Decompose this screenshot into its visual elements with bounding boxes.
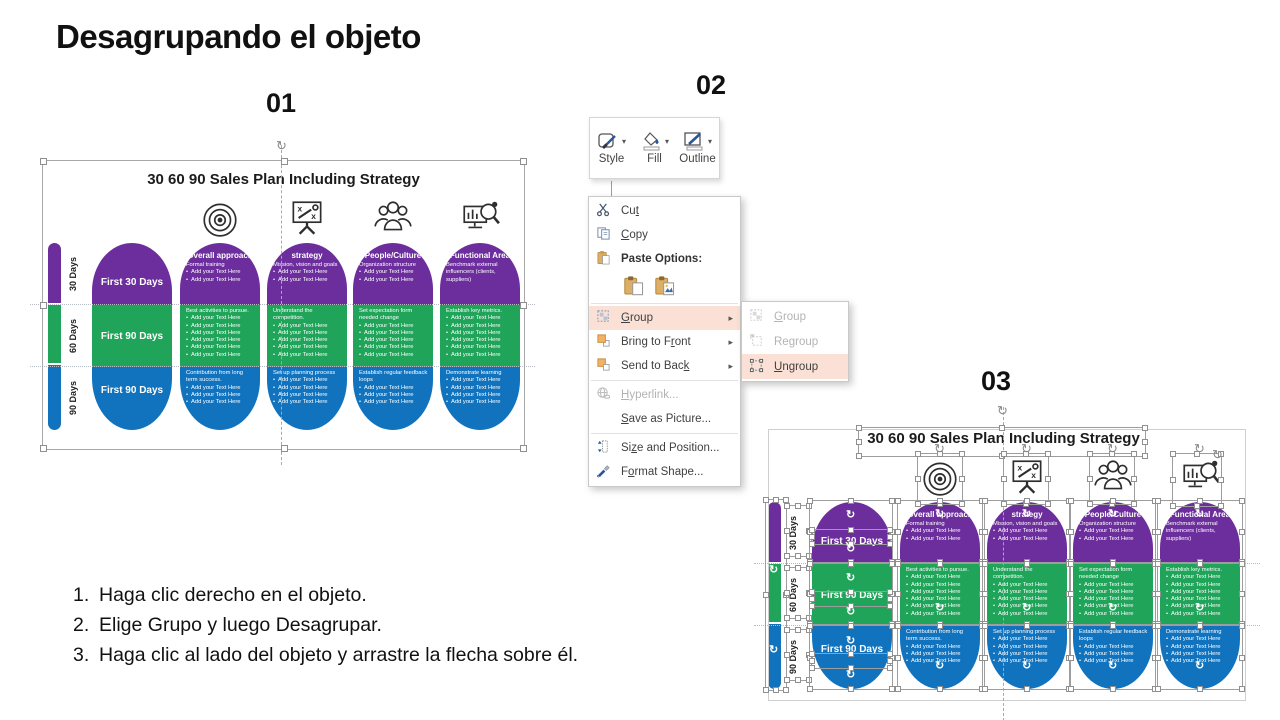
selection-handle[interactable]	[807, 498, 813, 504]
selection-handle[interactable]	[784, 553, 790, 559]
selection-handle[interactable]	[887, 527, 893, 533]
rotate-handle[interactable]: ↻	[1021, 443, 1032, 455]
grouped-object[interactable]: 30 60 90 Sales Plan Including Strategy x…	[42, 160, 525, 450]
selection-handle[interactable]	[1131, 476, 1137, 482]
selection-handle[interactable]	[809, 534, 815, 540]
selection-handle[interactable]	[982, 686, 988, 692]
rotate-handle[interactable]: ↻	[935, 602, 944, 614]
paste-icon	[594, 250, 613, 268]
selection-handle[interactable]	[887, 658, 893, 664]
rotate-handle[interactable]: ↻	[1212, 449, 1223, 461]
rotate-handle[interactable]: ↻	[846, 635, 855, 647]
selection-handle[interactable]	[1197, 498, 1203, 504]
selection-handle[interactable]	[1239, 623, 1245, 629]
selection-handle[interactable]	[809, 589, 815, 595]
selection-handle[interactable]	[895, 529, 901, 535]
selection-handle[interactable]	[40, 158, 47, 165]
selection-handle[interactable]	[1239, 591, 1245, 597]
selection-handle[interactable]	[809, 527, 815, 533]
menu-item-copy[interactable]: Copy	[589, 223, 740, 247]
selection-handle[interactable]	[1142, 453, 1148, 459]
selection-handle[interactable]	[848, 623, 854, 629]
instructions-list: 1.Haga clic derecho en el objeto. 2.Elig…	[73, 584, 693, 674]
selection-handle[interactable]	[795, 553, 801, 559]
group-icon	[747, 308, 766, 326]
selection-handle[interactable]	[784, 615, 790, 621]
selection-handle[interactable]	[937, 623, 943, 629]
selection-handle[interactable]	[1068, 655, 1074, 661]
selection-handle[interactable]	[1218, 477, 1224, 483]
selection-handle[interactable]	[784, 503, 790, 509]
selection-handle[interactable]	[887, 589, 893, 595]
rotate-handle[interactable]: ↻	[846, 543, 855, 555]
selection-handle[interactable]	[809, 665, 815, 671]
rotate-handle[interactable]: ↻	[769, 644, 778, 656]
selection-handle[interactable]	[520, 158, 527, 165]
selection-handle[interactable]	[982, 498, 988, 504]
instruction-step-3: 3.Haga clic al lado del objeto y arrastr…	[73, 644, 693, 667]
selection-handle[interactable]	[520, 445, 527, 452]
group-icon	[594, 309, 613, 327]
selection-handle[interactable]	[1068, 498, 1074, 504]
menu-item-size-and-position[interactable]: Size and Position...	[589, 436, 740, 460]
selection-handle[interactable]	[1155, 686, 1161, 692]
rotate-handle[interactable]: ↻	[1195, 660, 1204, 672]
selection-handle[interactable]	[887, 534, 893, 540]
selection-handle[interactable]	[281, 158, 288, 165]
rotate-handle[interactable]: ↻	[1195, 508, 1204, 520]
slide: Desagrupando el objeto 01 02 03 30 60 90…	[0, 0, 1280, 720]
menu-item-bring-to-front[interactable]: Bring to Front ▸	[589, 330, 740, 354]
rotate-handle[interactable]: ↻	[1022, 660, 1031, 672]
selection-handle[interactable]	[1068, 591, 1074, 597]
selection-handle[interactable]	[784, 652, 790, 658]
instruction-step-2: 2.Elige Grupo y luego Desagrupar.	[73, 614, 693, 637]
fill-icon	[640, 131, 664, 151]
paste-options-row	[589, 271, 740, 301]
step-number-01: 01	[266, 88, 296, 119]
selection-handle[interactable]	[895, 591, 901, 597]
dropdown-arrow-icon[interactable]: ▾	[665, 137, 669, 146]
rotate-handle[interactable]: ↻	[1108, 660, 1117, 672]
selection-handle[interactable]	[982, 591, 988, 597]
format-shape-icon	[594, 463, 613, 481]
context-menu: Cut Copy Paste Options:	[588, 196, 741, 487]
submenu-arrow-icon: ▸	[728, 337, 733, 348]
submenu-arrow-icon: ▸	[728, 313, 733, 324]
selection-handle[interactable]	[1155, 655, 1161, 661]
selection-handle[interactable]	[1142, 425, 1148, 431]
selection-handle[interactable]	[895, 561, 901, 567]
selection-box[interactable]	[811, 653, 891, 669]
menu-separator	[591, 433, 738, 434]
cursor-line	[611, 181, 612, 196]
rotate-handle[interactable]: ↻	[1195, 602, 1204, 614]
selection-handle[interactable]	[1155, 623, 1161, 629]
selection-handle[interactable]	[809, 658, 815, 664]
selection-handle[interactable]	[937, 561, 943, 567]
selection-handle[interactable]	[1110, 623, 1116, 629]
selection-handle[interactable]	[895, 498, 901, 504]
selection-handle[interactable]	[856, 453, 862, 459]
selection-handle[interactable]	[848, 561, 854, 567]
selection-handle[interactable]	[1001, 451, 1007, 457]
selection-handle[interactable]	[784, 677, 790, 683]
submenu-arrow-icon: ▸	[728, 361, 733, 372]
rotate-handle[interactable]: ↻	[846, 572, 855, 584]
ungroup-icon	[747, 358, 766, 376]
submenu-item-group: Group	[742, 304, 848, 329]
style-icon	[597, 131, 621, 151]
selection-handle[interactable]	[1024, 561, 1030, 567]
selection-handle[interactable]	[937, 498, 943, 504]
selection-handle[interactable]	[848, 589, 854, 595]
selection-handle[interactable]	[773, 497, 779, 503]
hyperlink-icon	[594, 386, 613, 404]
selection-handle[interactable]	[895, 655, 901, 661]
selection-box[interactable]	[1157, 625, 1243, 690]
selection-handle[interactable]	[281, 445, 288, 452]
style-button[interactable]: ▾ Style	[590, 118, 633, 178]
rotate-handle[interactable]: ↻	[1194, 443, 1205, 455]
selection-handle[interactable]	[887, 665, 893, 671]
selection-handle[interactable]	[982, 529, 988, 535]
fill-label: Fill	[647, 153, 662, 165]
selection-handle[interactable]	[795, 677, 801, 683]
selection-handle[interactable]	[40, 445, 47, 452]
rotate-handle[interactable]: ↻	[935, 508, 944, 520]
step-number-03: 03	[981, 366, 1011, 397]
selection-handle[interactable]	[895, 686, 901, 692]
submenu-item-ungroup[interactable]: Ungroup	[742, 354, 848, 379]
selection-handle[interactable]	[807, 561, 813, 567]
selection-handle[interactable]	[1239, 686, 1245, 692]
menu-item-send-to-back[interactable]: Send to Back ▸	[589, 354, 740, 378]
selection-handle[interactable]	[795, 615, 801, 621]
selection-frame[interactable]	[42, 160, 525, 450]
selection-handle[interactable]	[763, 497, 769, 503]
selection-handle[interactable]	[1001, 476, 1007, 482]
regroup-icon	[747, 333, 766, 351]
selection-handle[interactable]	[848, 527, 854, 533]
dropdown-arrow-icon[interactable]: ▾	[708, 137, 712, 146]
selection-handle[interactable]	[1087, 476, 1093, 482]
dropdown-arrow-icon[interactable]: ▾	[622, 137, 626, 146]
selection-handle[interactable]	[1239, 561, 1245, 567]
style-label: Style	[599, 153, 625, 165]
selection-box[interactable]	[897, 563, 983, 625]
selection-handle[interactable]	[1131, 451, 1137, 457]
menu-item-hyperlink: Hyperlink...	[589, 383, 740, 407]
group-submenu: Group Regroup Ungroup	[741, 301, 849, 382]
bring-to-front-icon	[594, 333, 613, 351]
selection-handle[interactable]	[809, 596, 815, 602]
selection-handle[interactable]	[809, 541, 815, 547]
rotate-handle[interactable]: ↻	[997, 405, 1008, 417]
rotate-handle[interactable]: ↻	[1022, 602, 1031, 614]
selection-handle[interactable]	[763, 687, 769, 693]
cut-icon	[594, 202, 613, 220]
menu-item-paste-options: Paste Options:	[589, 247, 740, 271]
outline-label: Outline	[679, 153, 715, 165]
selection-handle[interactable]	[1155, 591, 1161, 597]
selection-handle[interactable]	[887, 651, 893, 657]
rotate-handle[interactable]: ↻	[1107, 443, 1118, 455]
selection-handle[interactable]	[784, 590, 790, 596]
rotate-handle[interactable]: ↻	[846, 669, 855, 681]
selection-handle[interactable]	[1024, 498, 1030, 504]
selection-handle[interactable]	[848, 498, 854, 504]
ungrouped-object[interactable]: 30 60 90 Sales Plan Including Strategy x…	[762, 419, 1245, 709]
selection-handle[interactable]	[520, 302, 527, 309]
selection-handle[interactable]	[1068, 561, 1074, 567]
selection-handle[interactable]	[999, 425, 1005, 431]
selection-handle[interactable]	[848, 686, 854, 692]
selection-handle[interactable]	[1045, 476, 1051, 482]
selection-handle[interactable]	[1024, 686, 1030, 692]
send-to-back-icon	[594, 357, 613, 375]
selection-handle[interactable]	[856, 439, 862, 445]
selection-box[interactable]	[1157, 563, 1243, 625]
selection-handle[interactable]	[887, 596, 893, 602]
selection-handle[interactable]	[763, 592, 769, 598]
paste-picture-button[interactable]	[652, 274, 677, 297]
mini-toolbar: ▾ Style ▾ Fill ▾	[589, 117, 720, 179]
selection-handle[interactable]	[795, 503, 801, 509]
outline-icon	[683, 131, 707, 151]
size-position-icon	[594, 439, 613, 457]
selection-handle[interactable]	[1068, 529, 1074, 535]
selection-handle[interactable]	[40, 302, 47, 309]
selection-handle[interactable]	[959, 476, 965, 482]
step-number-02: 02	[696, 70, 726, 101]
selection-handle[interactable]	[1155, 498, 1161, 504]
menu-item-group[interactable]: Group ▸	[589, 306, 740, 330]
selection-handle[interactable]	[1239, 529, 1245, 535]
selection-handle[interactable]	[1110, 561, 1116, 567]
selection-handle[interactable]	[809, 603, 815, 609]
selection-handle[interactable]	[915, 451, 921, 457]
selection-handle[interactable]	[1239, 655, 1245, 661]
selection-handle[interactable]	[1170, 451, 1176, 457]
page-title: Desagrupando el objeto	[56, 18, 421, 56]
submenu-item-regroup: Regroup	[742, 329, 848, 354]
rotate-handle[interactable]: ↻	[935, 660, 944, 672]
selection-handle[interactable]	[887, 541, 893, 547]
selection-handle[interactable]	[1068, 686, 1074, 692]
selection-handle[interactable]	[895, 623, 901, 629]
selection-handle[interactable]	[784, 565, 790, 571]
menu-item-cut[interactable]: Cut	[589, 199, 740, 223]
selection-handle[interactable]	[784, 627, 790, 633]
rotate-handle[interactable]: ↻	[769, 564, 778, 576]
selection-handle[interactable]	[1087, 451, 1093, 457]
selection-handle[interactable]	[1239, 498, 1245, 504]
selection-handle[interactable]	[959, 451, 965, 457]
selection-handle[interactable]	[1197, 686, 1203, 692]
selection-handle[interactable]	[1197, 561, 1203, 567]
selection-handle[interactable]	[982, 561, 988, 567]
instruction-step-1: 1.Haga clic derecho en el objeto.	[73, 584, 693, 607]
selection-handle[interactable]	[795, 565, 801, 571]
selection-box[interactable]	[984, 625, 1070, 690]
rotate-handle[interactable]: ↻	[1022, 508, 1031, 520]
rotate-handle[interactable]: ↻	[1108, 508, 1117, 520]
selection-handle[interactable]	[937, 686, 943, 692]
menu-item-save-as-picture[interactable]: Save as Picture...	[589, 407, 740, 431]
selection-box[interactable]	[897, 625, 983, 690]
selection-handle[interactable]	[1110, 498, 1116, 504]
selection-handle[interactable]	[1155, 529, 1161, 535]
selection-handle[interactable]	[1155, 561, 1161, 567]
selection-handle[interactable]	[1170, 477, 1176, 483]
copy-icon	[594, 226, 613, 244]
outline-button[interactable]: ▾ Outline	[676, 118, 719, 178]
selection-handle[interactable]	[783, 687, 789, 693]
selection-handle[interactable]	[807, 686, 813, 692]
menu-item-format-shape[interactable]: Format Shape...	[589, 460, 740, 484]
selection-handle[interactable]	[1142, 439, 1148, 445]
menu-separator	[591, 380, 738, 381]
selection-handle[interactable]	[809, 651, 815, 657]
selection-handle[interactable]	[1024, 623, 1030, 629]
menu-separator	[591, 303, 738, 304]
selection-handle[interactable]	[784, 528, 790, 534]
selection-handle[interactable]	[848, 651, 854, 657]
selection-handle[interactable]	[795, 627, 801, 633]
selection-box[interactable]	[811, 591, 891, 607]
selection-handle[interactable]	[1045, 451, 1051, 457]
selection-handle[interactable]	[1110, 686, 1116, 692]
selection-handle[interactable]	[915, 476, 921, 482]
selection-handle[interactable]	[887, 603, 893, 609]
rotate-handle[interactable]: ↻	[934, 443, 945, 455]
paste-keep-formatting-button[interactable]	[621, 274, 646, 297]
selection-handle[interactable]	[982, 655, 988, 661]
selection-box[interactable]	[1070, 563, 1156, 625]
rotate-handle[interactable]: ↻	[1108, 602, 1117, 614]
selection-handle[interactable]	[773, 687, 779, 693]
selection-handle[interactable]	[1197, 623, 1203, 629]
selection-box[interactable]	[984, 563, 1070, 625]
rotate-handle[interactable]: ↻	[846, 509, 855, 521]
selection-box[interactable]	[1070, 625, 1156, 690]
selection-handle[interactable]	[807, 623, 813, 629]
rotate-handle[interactable]: ↻	[276, 140, 287, 152]
selection-handle[interactable]	[982, 623, 988, 629]
selection-handle[interactable]	[1068, 623, 1074, 629]
rotate-handle[interactable]: ↻	[846, 606, 855, 618]
fill-button[interactable]: ▾ Fill	[633, 118, 676, 178]
selection-handle[interactable]	[856, 425, 862, 431]
